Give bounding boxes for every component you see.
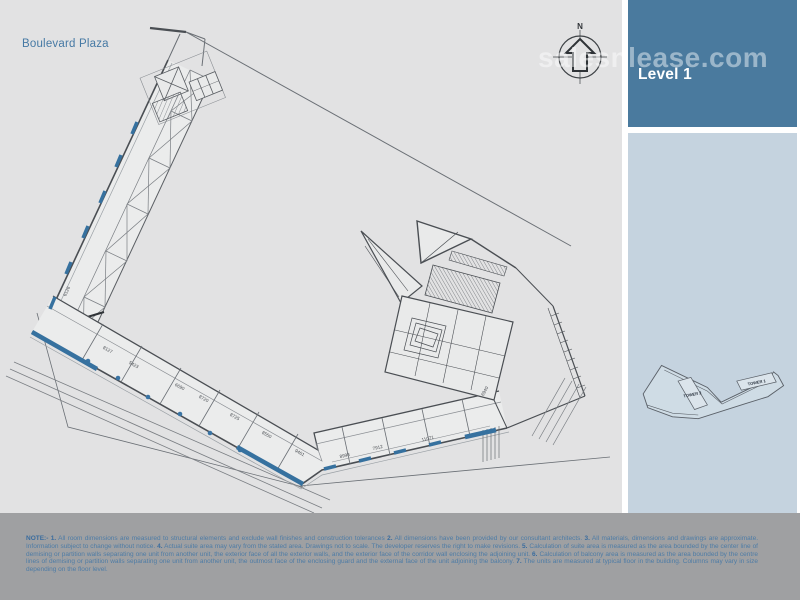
north-label: N: [577, 22, 583, 31]
note-number: NOTE:- 1.: [26, 535, 56, 542]
notes-text: NOTE:- 1. All room dimensions are measur…: [26, 535, 758, 574]
site-minimap: TOWER 1 TOWER 2: [634, 351, 790, 435]
facade-mullions: [551, 313, 585, 388]
sidebar-header: Level 1: [628, 0, 797, 127]
level-title: Level 1: [638, 66, 692, 84]
note-text-segment: All room dimensions are measured to stru…: [56, 535, 387, 542]
note-text-segment: All dimensions have been provided by our…: [393, 535, 585, 542]
north-arrow-icon: N: [553, 22, 607, 84]
floorplan-canvas: Boulevard Plaza: [0, 0, 622, 513]
page: Boulevard Plaza: [0, 0, 800, 600]
sidebar-panel: TOWER 1 TOWER 2: [628, 133, 797, 513]
footer-notes-bar: NOTE:- 1. All room dimensions are measur…: [0, 513, 800, 600]
note-text-segment: Actual suite area may vary from the stat…: [163, 543, 522, 550]
floorplan-drawing: 6126 8127 5423 6690 8720 8725 8550 9461 …: [0, 0, 622, 513]
landscape-strips: [532, 378, 586, 445]
